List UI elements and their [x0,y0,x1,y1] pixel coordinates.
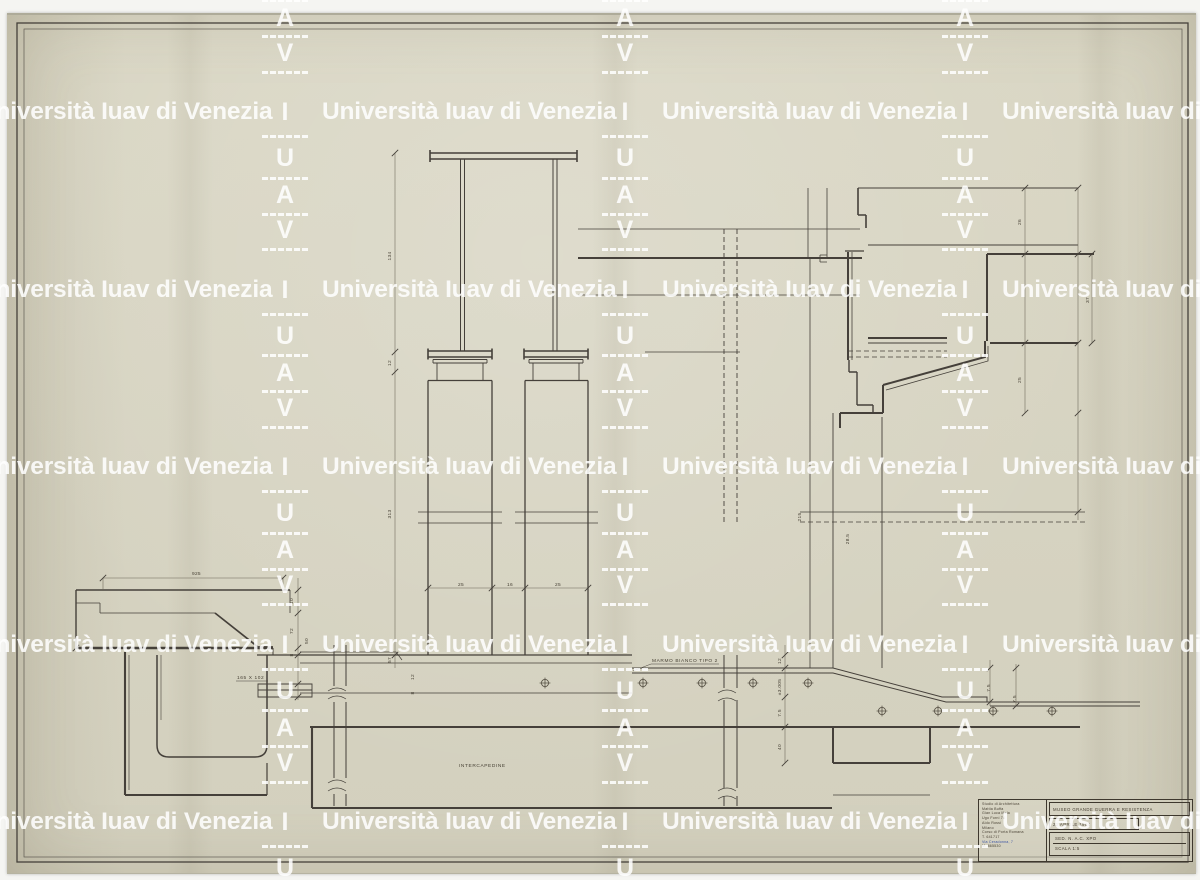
drawing-date: 22 APRILE 1964 [1049,818,1139,830]
material-label: INTERCAPEDINE [459,763,506,769]
project-title: MUSEO GRANDE GUERRA E RESISTENZA [1049,802,1190,816]
dimension-label: 72 [289,628,295,634]
column-capitals [433,360,583,381]
dimension-label: 25 [1017,377,1023,383]
drawing-scale: SCALA 1:5 [1053,844,1186,853]
anchor-cross-icon [1047,706,1058,717]
dimension-label: 25 [555,582,561,588]
steel-beam-section [428,150,588,360]
dimension-label: 8 [289,653,295,656]
sheet-reference: SED. N. A.C. XPO [1053,835,1186,845]
dimension-label: 12 [387,360,393,366]
material-label: 165 X 102 [237,675,264,681]
floor-section [236,645,1140,808]
anchor-cross-icon [988,706,999,717]
dimension-label: 12 [777,658,783,664]
dimension-label: 10 [289,598,295,604]
sheet-reference-box: SED. N. A.C. XPO SCALA 1:5 [1049,832,1190,856]
anchor-cross-icon [803,678,814,689]
anchor-cross-icon [697,678,708,689]
studio-info-line: M. 865530 [982,844,1043,849]
dimension-label: 26 [1017,219,1023,225]
dimension-chains [73,150,1095,766]
anchor-cross-icon [877,706,888,717]
dimension-label: 50 [304,638,310,644]
center-beam-section [578,188,862,523]
title-block-right: MUSEO GRANDE GUERRA E RESISTENZA 22 APRI… [1047,800,1192,861]
left-slab-detail [76,590,312,795]
dimension-label: 16 [507,582,513,588]
title-block: Studio di ArchitetturaMattia BuffaGian L… [978,799,1193,862]
anchor-cross-icon [540,678,551,689]
dimension-label: 40 [777,744,783,750]
dimension-label: 8 [410,691,416,694]
dimension-label: 313 [387,510,393,519]
dimension-label: 215 [797,513,803,522]
dimension-label: 25 [458,582,464,588]
dimension-label: 12 [410,674,416,680]
dimension-label: 7.5 [1012,695,1018,703]
dimension-label: 28.5 [845,534,851,545]
dimension-label: 7.5 [777,709,783,717]
dimension-label: 7.5 [986,684,992,692]
dimension-label: 37 [1085,297,1091,303]
material-label: MARMO BIANCO TIPO 2 [652,658,718,664]
marble-columns-section [418,381,598,656]
dimension-label: 57 [387,657,393,663]
anchor-cross-icon [638,678,649,689]
scanned-drawing-page: 925134123135725162526253721528.512±3.005… [0,0,1200,880]
dimension-label: 925 [192,571,201,577]
title-block-studio: Studio di ArchitetturaMattia BuffaGian L… [979,800,1047,861]
sheet-border [17,23,1188,862]
dimension-label: ±3.005 [777,679,783,695]
anchor-cross-icon [748,678,759,689]
anchor-cross-icon [933,706,944,717]
technical-drawing-svg: 925134123135725162526253721528.512±3.005… [0,0,1200,880]
right-wall-profile [800,188,1094,668]
dimension-label: 134 [387,252,393,261]
